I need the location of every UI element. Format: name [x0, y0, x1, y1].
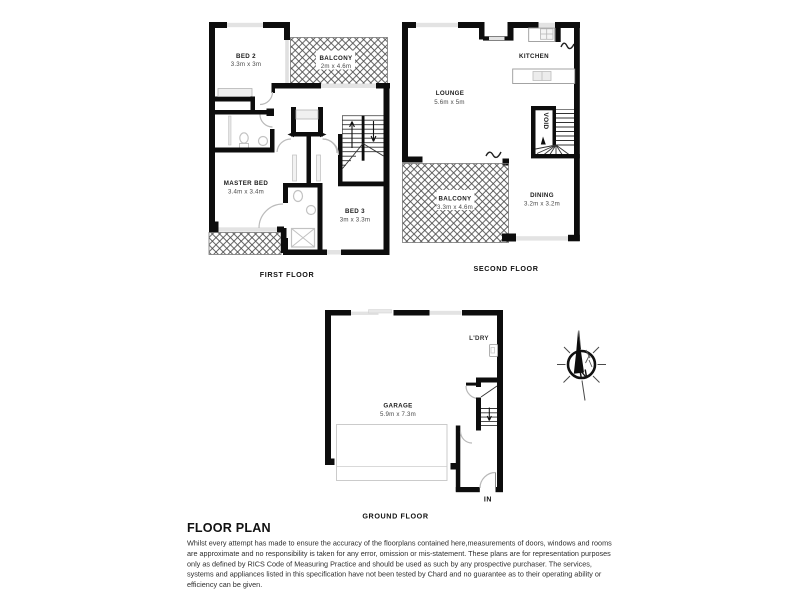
- svg-text:systems and appliances listed: systems and appliances listed in this sp…: [187, 570, 602, 579]
- svg-text:DINING: DINING: [530, 192, 554, 199]
- svg-text:VOID: VOID: [542, 112, 549, 129]
- svg-text:GARAGE: GARAGE: [383, 403, 412, 410]
- svg-text:SECOND FLOOR: SECOND FLOOR: [473, 264, 538, 273]
- svg-text:BED 3: BED 3: [345, 208, 365, 215]
- svg-text:efficiency can be given.: efficiency can be given.: [187, 580, 262, 589]
- svg-text:IN: IN: [484, 497, 492, 504]
- svg-text:LOUNGE: LOUNGE: [436, 90, 465, 97]
- svg-text:Whilst every attempt has made: Whilst every attempt has made to ensure …: [187, 539, 612, 548]
- svg-text:FLOOR PLAN: FLOOR PLAN: [187, 521, 271, 535]
- svg-text:3m x 3.3m: 3m x 3.3m: [340, 217, 370, 224]
- svg-text:BALCONY: BALCONY: [438, 196, 472, 203]
- svg-text:GROUND FLOOR: GROUND FLOOR: [362, 512, 429, 521]
- svg-text:2m x 4.6m: 2m x 4.6m: [321, 63, 351, 70]
- svg-text:L'DRY: L'DRY: [469, 335, 489, 342]
- svg-text:3.4m x 3.4m: 3.4m x 3.4m: [228, 189, 264, 196]
- svg-text:BED 2: BED 2: [236, 53, 256, 60]
- svg-text:only as defined by RICS Code o: only as defined by RICS Code of Measurin…: [187, 559, 592, 568]
- svg-text:3.2m x 3.2m: 3.2m x 3.2m: [524, 201, 560, 208]
- svg-text:FIRST FLOOR: FIRST FLOOR: [260, 270, 315, 279]
- svg-text:3.3m x 3m: 3.3m x 3m: [231, 61, 261, 68]
- svg-text:KITCHEN: KITCHEN: [519, 53, 549, 60]
- svg-text:5.6m x 5m: 5.6m x 5m: [434, 99, 464, 106]
- svg-text:BALCONY: BALCONY: [319, 55, 353, 62]
- svg-text:are approximate and no respons: are approximate and no responsibility is…: [187, 549, 611, 558]
- svg-text:MASTER BED: MASTER BED: [224, 180, 269, 187]
- svg-text:5.9m x 7.3m: 5.9m x 7.3m: [380, 411, 416, 418]
- svg-text:3.3m x 4.6m: 3.3m x 4.6m: [437, 204, 473, 211]
